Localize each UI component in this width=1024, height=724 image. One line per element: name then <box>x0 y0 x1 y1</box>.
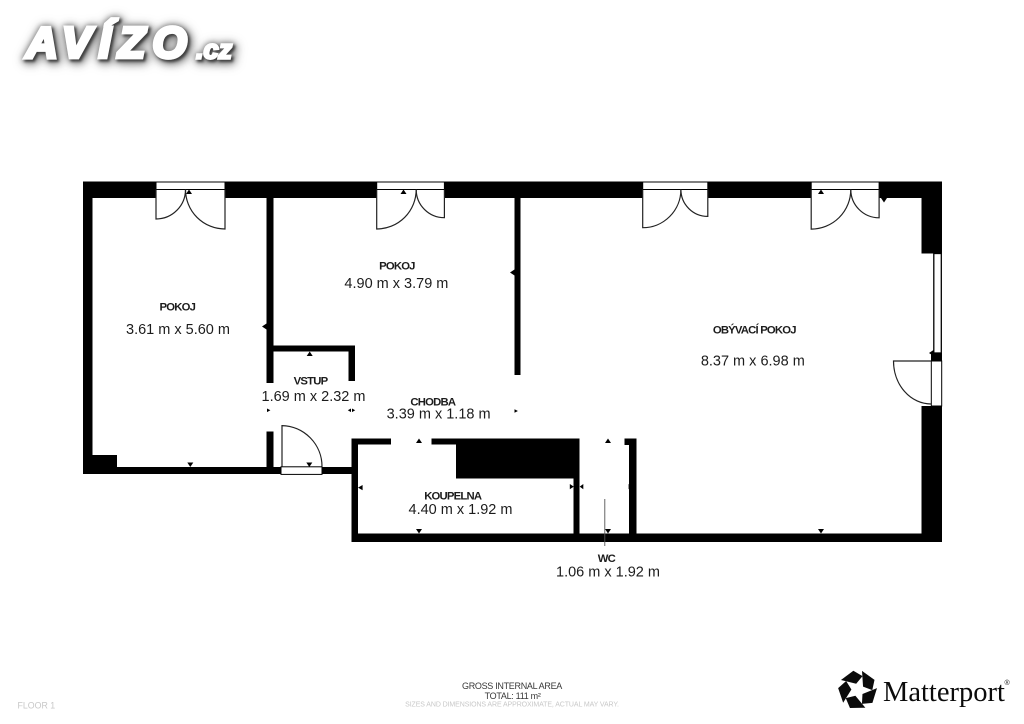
svg-text:KOUPELNA: KOUPELNA <box>424 491 482 503</box>
svg-text:4.40 m x 1.92 m: 4.40 m x 1.92 m <box>409 502 513 518</box>
svg-text:Matterport: Matterport <box>883 677 1005 708</box>
svg-text:WC: WC <box>598 553 616 565</box>
svg-text:3.61 m x 5.60 m: 3.61 m x 5.60 m <box>126 322 230 338</box>
svg-text:OBÝVACÍ POKOJ: OBÝVACÍ POKOJ <box>713 324 796 337</box>
svg-text:4.90 m x 3.79 m: 4.90 m x 3.79 m <box>344 276 448 292</box>
svg-text:POKOJ: POKOJ <box>379 261 415 273</box>
svg-text:TOTAL: 111 m²: TOTAL: 111 m² <box>485 691 541 701</box>
svg-text:®: ® <box>1005 679 1011 687</box>
svg-text:AVÍZO: AVÍZO <box>25 18 194 68</box>
svg-text:GROSS INTERNAL AREA: GROSS INTERNAL AREA <box>462 681 562 691</box>
svg-text:3.39 m x 1.18 m: 3.39 m x 1.18 m <box>387 407 491 423</box>
svg-text:.cz: .cz <box>196 35 233 65</box>
svg-text:1.69 m x 2.32 m: 1.69 m x 2.32 m <box>262 389 366 405</box>
svg-text:POKOJ: POKOJ <box>160 302 196 314</box>
svg-text:8.37 m x 6.98 m: 8.37 m x 6.98 m <box>701 354 805 370</box>
svg-text:VSTUP: VSTUP <box>294 376 329 388</box>
svg-text:1.06 m x 1.92 m: 1.06 m x 1.92 m <box>556 565 660 581</box>
svg-text:FLOOR 1: FLOOR 1 <box>18 701 56 711</box>
svg-text:SIZES AND DIMENSIONS ARE APPRO: SIZES AND DIMENSIONS ARE APPROXIMATE, AC… <box>405 702 619 709</box>
